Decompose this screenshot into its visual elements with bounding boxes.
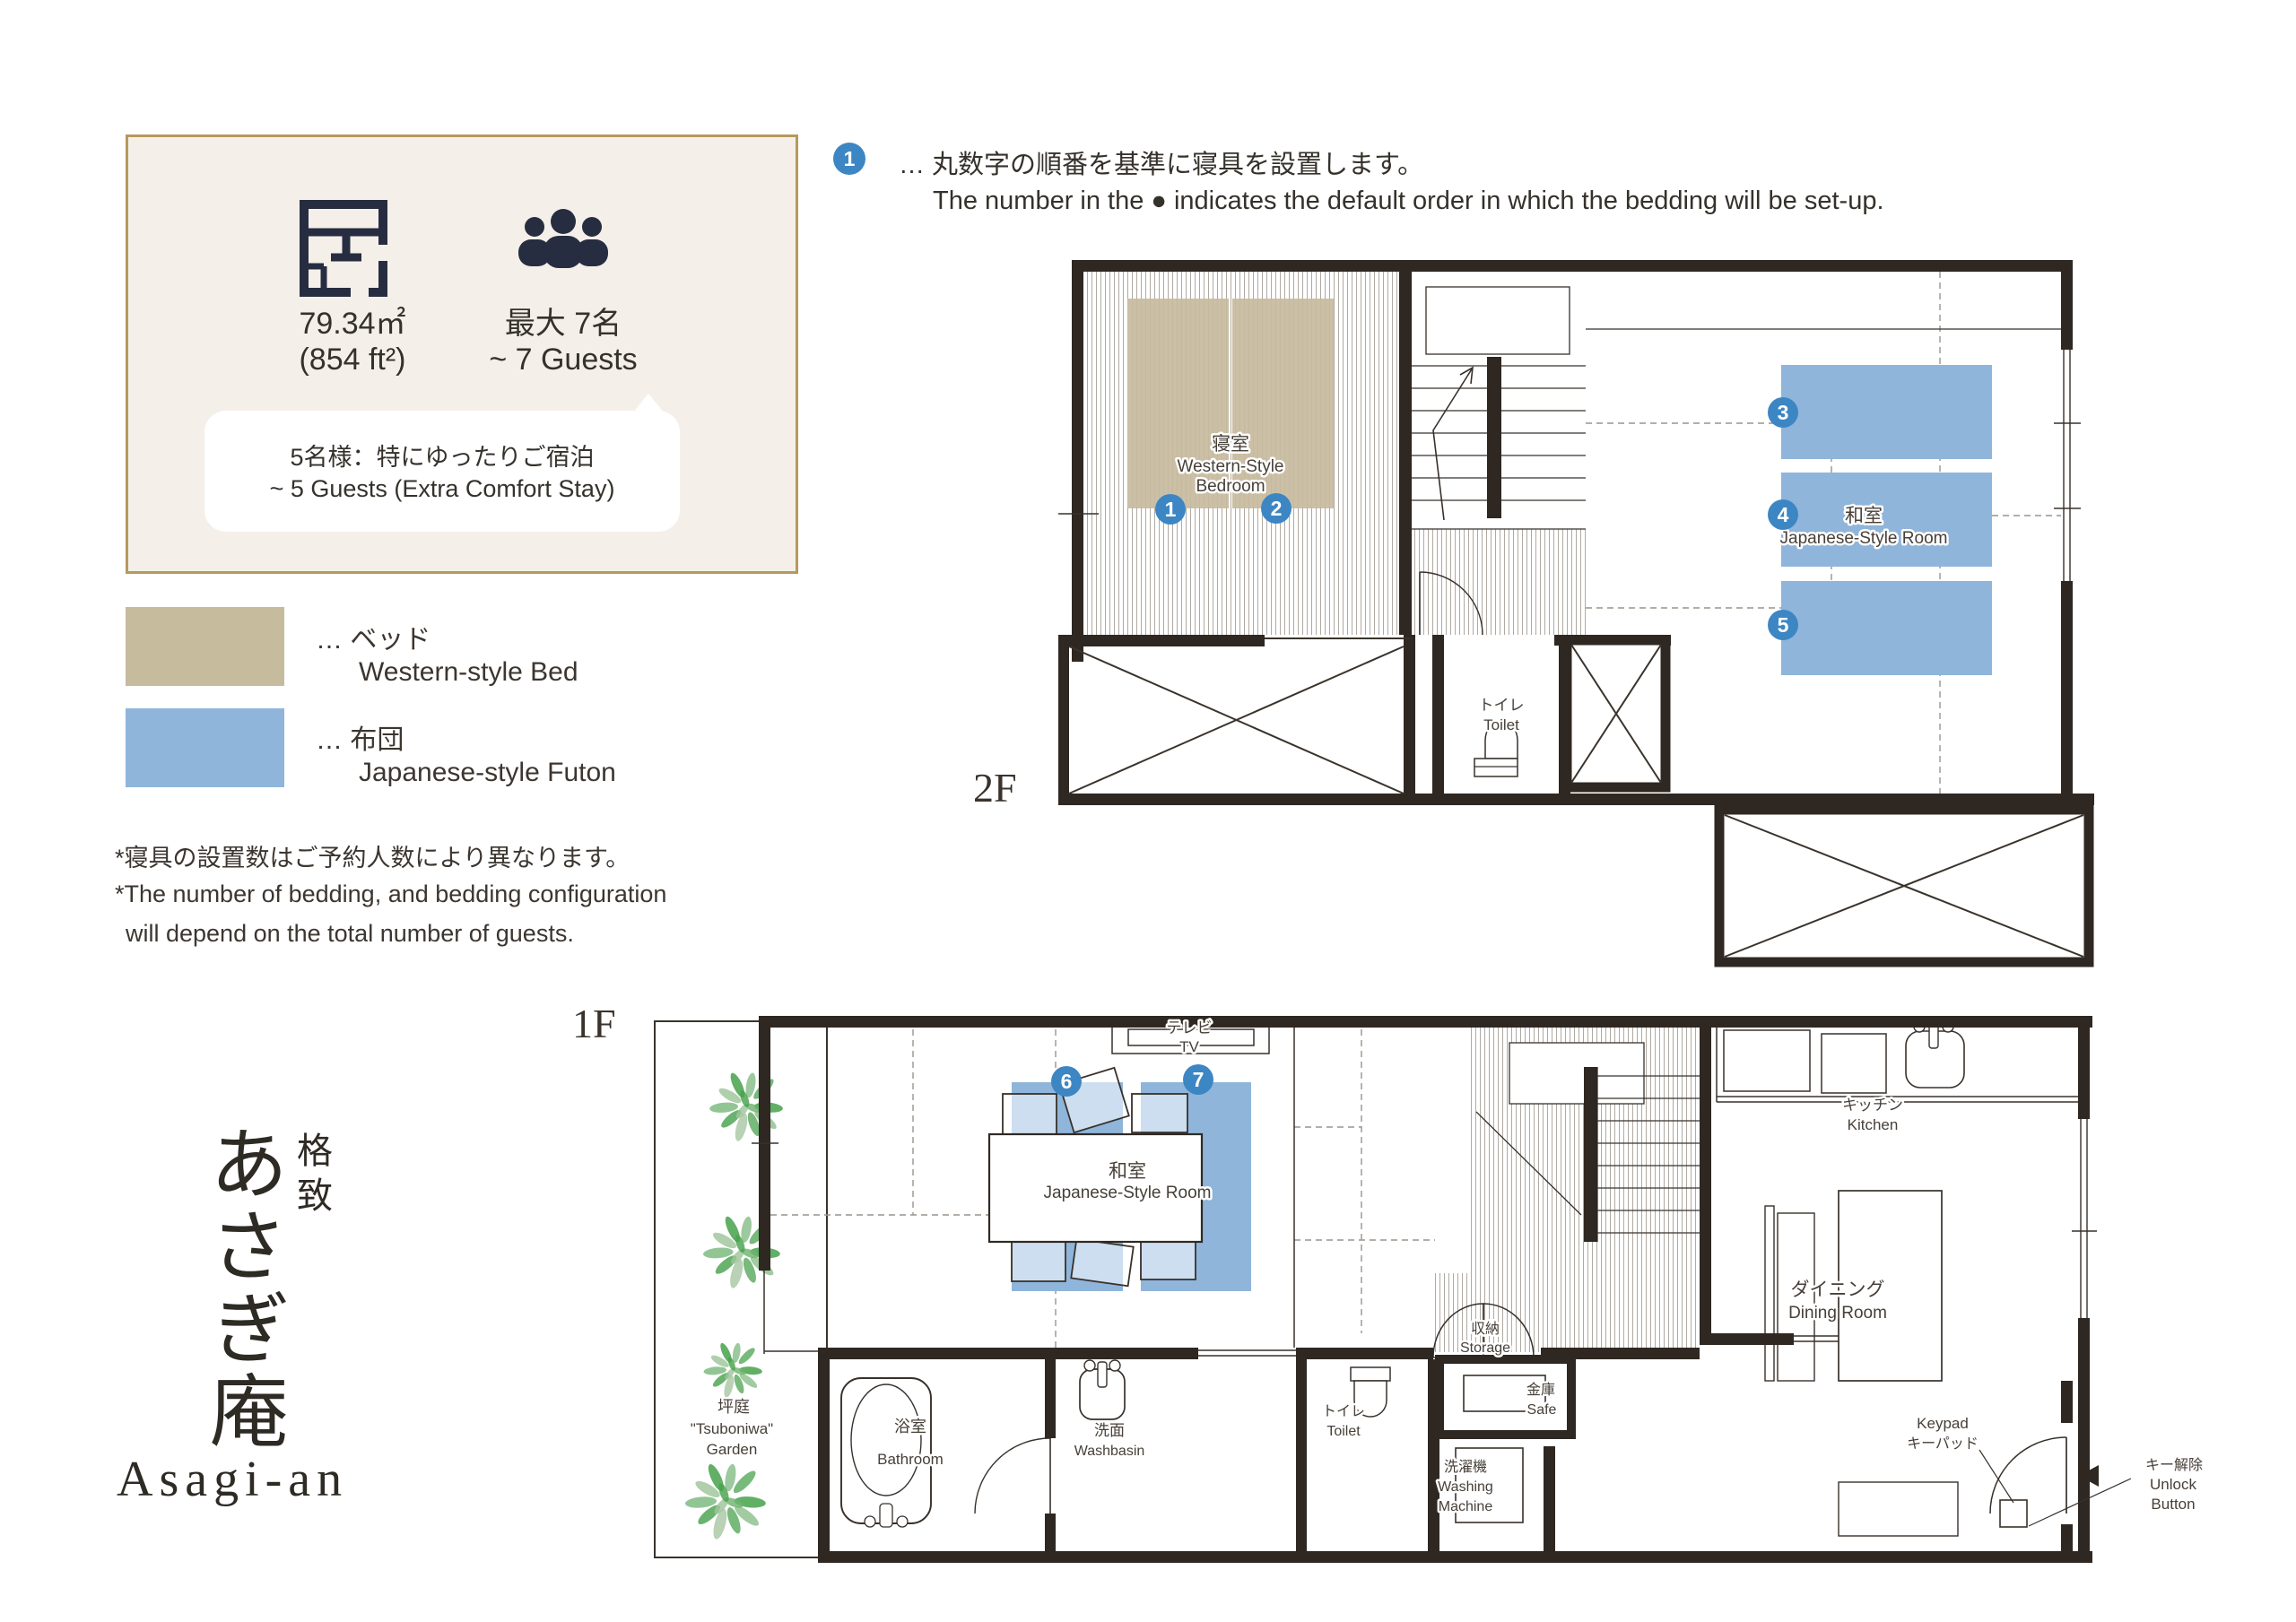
icon-door-gap2 [378,245,388,261]
entry-bench [1839,1482,1958,1536]
page: 79.34㎡ (854 ft²) 最大 7名 ~ 7 Guests 5名様：特に… [0,0,2296,1622]
floor1-label: 1F [572,1000,616,1047]
unlock-label-en1: Unlock [2150,1476,2196,1493]
futon-3 [1781,365,1992,459]
toilet2f-label-ja: トイレ [1479,697,1525,714]
jroom2f-label-ja: 和室 [1845,506,1883,526]
bathroom-label-ja: 浴室 [894,1418,926,1436]
counter-box [1822,1034,1886,1093]
dining-label-ja: ダイニング [1791,1279,1885,1300]
footnote-ja: *寝具の設置数はご予約人数により異なります。 [115,838,630,873]
keypad-label-en: Keypad [1917,1415,1969,1432]
area-value: 79.34㎡ (854 ft²) [272,306,433,377]
storage-label-ja: 収納 [1471,1321,1500,1337]
floorplan-1f: テレビ TV 和室 Japanese-Style Room 坪庭 "Tsubon… [644,1009,2205,1622]
void-box-bottom-right [1719,810,2089,962]
bathroom-label-en: Bathroom [877,1451,944,1468]
stove [1724,1030,1810,1091]
futon-5 [1781,581,1992,675]
bed-swatch [126,607,284,686]
svg-text:2: 2 [1271,497,1283,520]
keypad-box [2000,1500,2027,1527]
futon-4 [1781,473,1992,567]
bubble-text-ja: 5名様：特にゆったりご宿泊 [204,438,680,473]
svg-text:7: 7 [1193,1068,1205,1091]
keypad-pointer [1979,1450,2013,1503]
svg-text:3: 3 [1778,401,1789,424]
toilet1f-label-en: Toilet [1326,1424,1361,1439]
unlock-label-en2: Button [2151,1496,2195,1513]
title-japanese: あさぎ庵 [184,1123,298,1453]
void-box-left [1069,646,1404,794]
tv-label-en: TV [1179,1038,1199,1055]
safe-label-ja: 金庫 [1526,1382,1555,1398]
washbasin-icon [1080,1360,1125,1419]
bubble-tail [633,394,664,412]
entrance-door [1979,1437,2131,1527]
dining-set [1765,1191,1958,1536]
garden [655,1021,827,1557]
legend-futon-ja: … 布団 [316,717,404,757]
guest-capacity: 最大 7名 ~ 7 Guests [483,306,644,377]
landing-floor [1412,529,1586,635]
washer-label-en2: Machine [1439,1499,1493,1514]
kitchen-label-ja: キッチン [1842,1097,1903,1114]
jroom2f-label-en: Japanese-Style Room [1780,529,1948,548]
low-table-set [989,1068,1202,1286]
comfort-bubble: 5名様：特にゆったりご宿泊 ~ 5 Guests (Extra Comfort … [204,411,680,532]
garden-label-en1: "Tsuboniwa" [691,1420,773,1437]
bedding-numbers-1f: 6 7 [1051,1064,1213,1097]
void-box-middle [1567,640,1665,787]
kitchen-sink [1906,1021,1964,1088]
bedding-note-en: The number in the ● indicates the defaul… [933,186,1884,216]
bedroom-label-en2: Bedroom [1196,477,1265,496]
garden-label-ja: 坪庭 [717,1398,750,1416]
bathroom [841,1378,1050,1527]
window-right-2f [2054,350,2081,581]
washbasin-label-ja: 洗面 [1094,1422,1125,1439]
floorplan-2f: 寝室 Western-Style Bedroom 和室 Japanese-Sty… [1058,260,2094,968]
info-box: 79.34㎡ (854 ft²) 最大 7名 ~ 7 Guests 5名様：特に… [126,134,798,574]
storage-label-en: Storage [1460,1340,1510,1356]
toilet2f-label-en: Toilet [1483,716,1519,733]
legend-futon-en: Japanese-style Futon [359,758,616,788]
legend-bed-ja: … ベッド [316,617,430,656]
svg-text:5: 5 [1778,613,1789,637]
svg-text:1: 1 [844,147,856,170]
garden-label-en2: Garden [707,1441,758,1458]
washer-label-ja: 洗濯機 [1444,1459,1487,1475]
icon-door-gap [351,286,369,299]
dining-label-en: Dining Room [1788,1304,1887,1323]
footnote-en2: will depend on the total number of guest… [126,920,574,948]
keypad-label-ja: キーパッド [1907,1436,1979,1452]
jroom1f-label-ja: 和室 [1109,1161,1146,1182]
svg-text:4: 4 [1778,503,1789,526]
bench-back [1765,1206,1774,1381]
bedding-note-ja: … 丸数字の順番を基準に寝具を設置します。 [899,143,1423,181]
unlock-label-ja: キー解除 [2145,1457,2203,1473]
stairs-2f [1412,287,1586,529]
legend-bed-en: Western-style Bed [359,657,578,688]
kitchen-label-en: Kitchen [1848,1116,1899,1133]
kitchen-counter [1717,1021,2078,1102]
bedroom-label-ja: 寝室 [1212,434,1249,455]
svg-text:6: 6 [1061,1070,1073,1093]
guests-icon [509,207,617,277]
jroom1f-label-en: Japanese-Style Room [1044,1184,1212,1202]
footnote-en1: *The number of bedding, and bedding conf… [115,880,666,908]
toilet1f-label-ja: トイレ [1322,1404,1365,1419]
bubble-text-en: ~ 5 Guests (Extra Comfort Stay) [204,475,680,503]
washbasin-label-en: Washbasin [1074,1444,1145,1459]
note-number-circle: 1 [832,142,868,178]
floor2-label: 2F [973,764,1017,811]
safe-label-en: Safe [1527,1402,1557,1418]
bathroom-door [975,1438,1050,1514]
bedroom-label-en1: Western-Style [1178,457,1284,476]
washer-label-en1: Washing [1438,1479,1493,1495]
futon-swatch [126,708,284,787]
tv-label-ja: テレビ [1167,1019,1213,1037]
title-romaji: Asagi-an [117,1451,348,1508]
svg-text:1: 1 [1165,498,1177,521]
floorplan-icon [299,198,388,299]
